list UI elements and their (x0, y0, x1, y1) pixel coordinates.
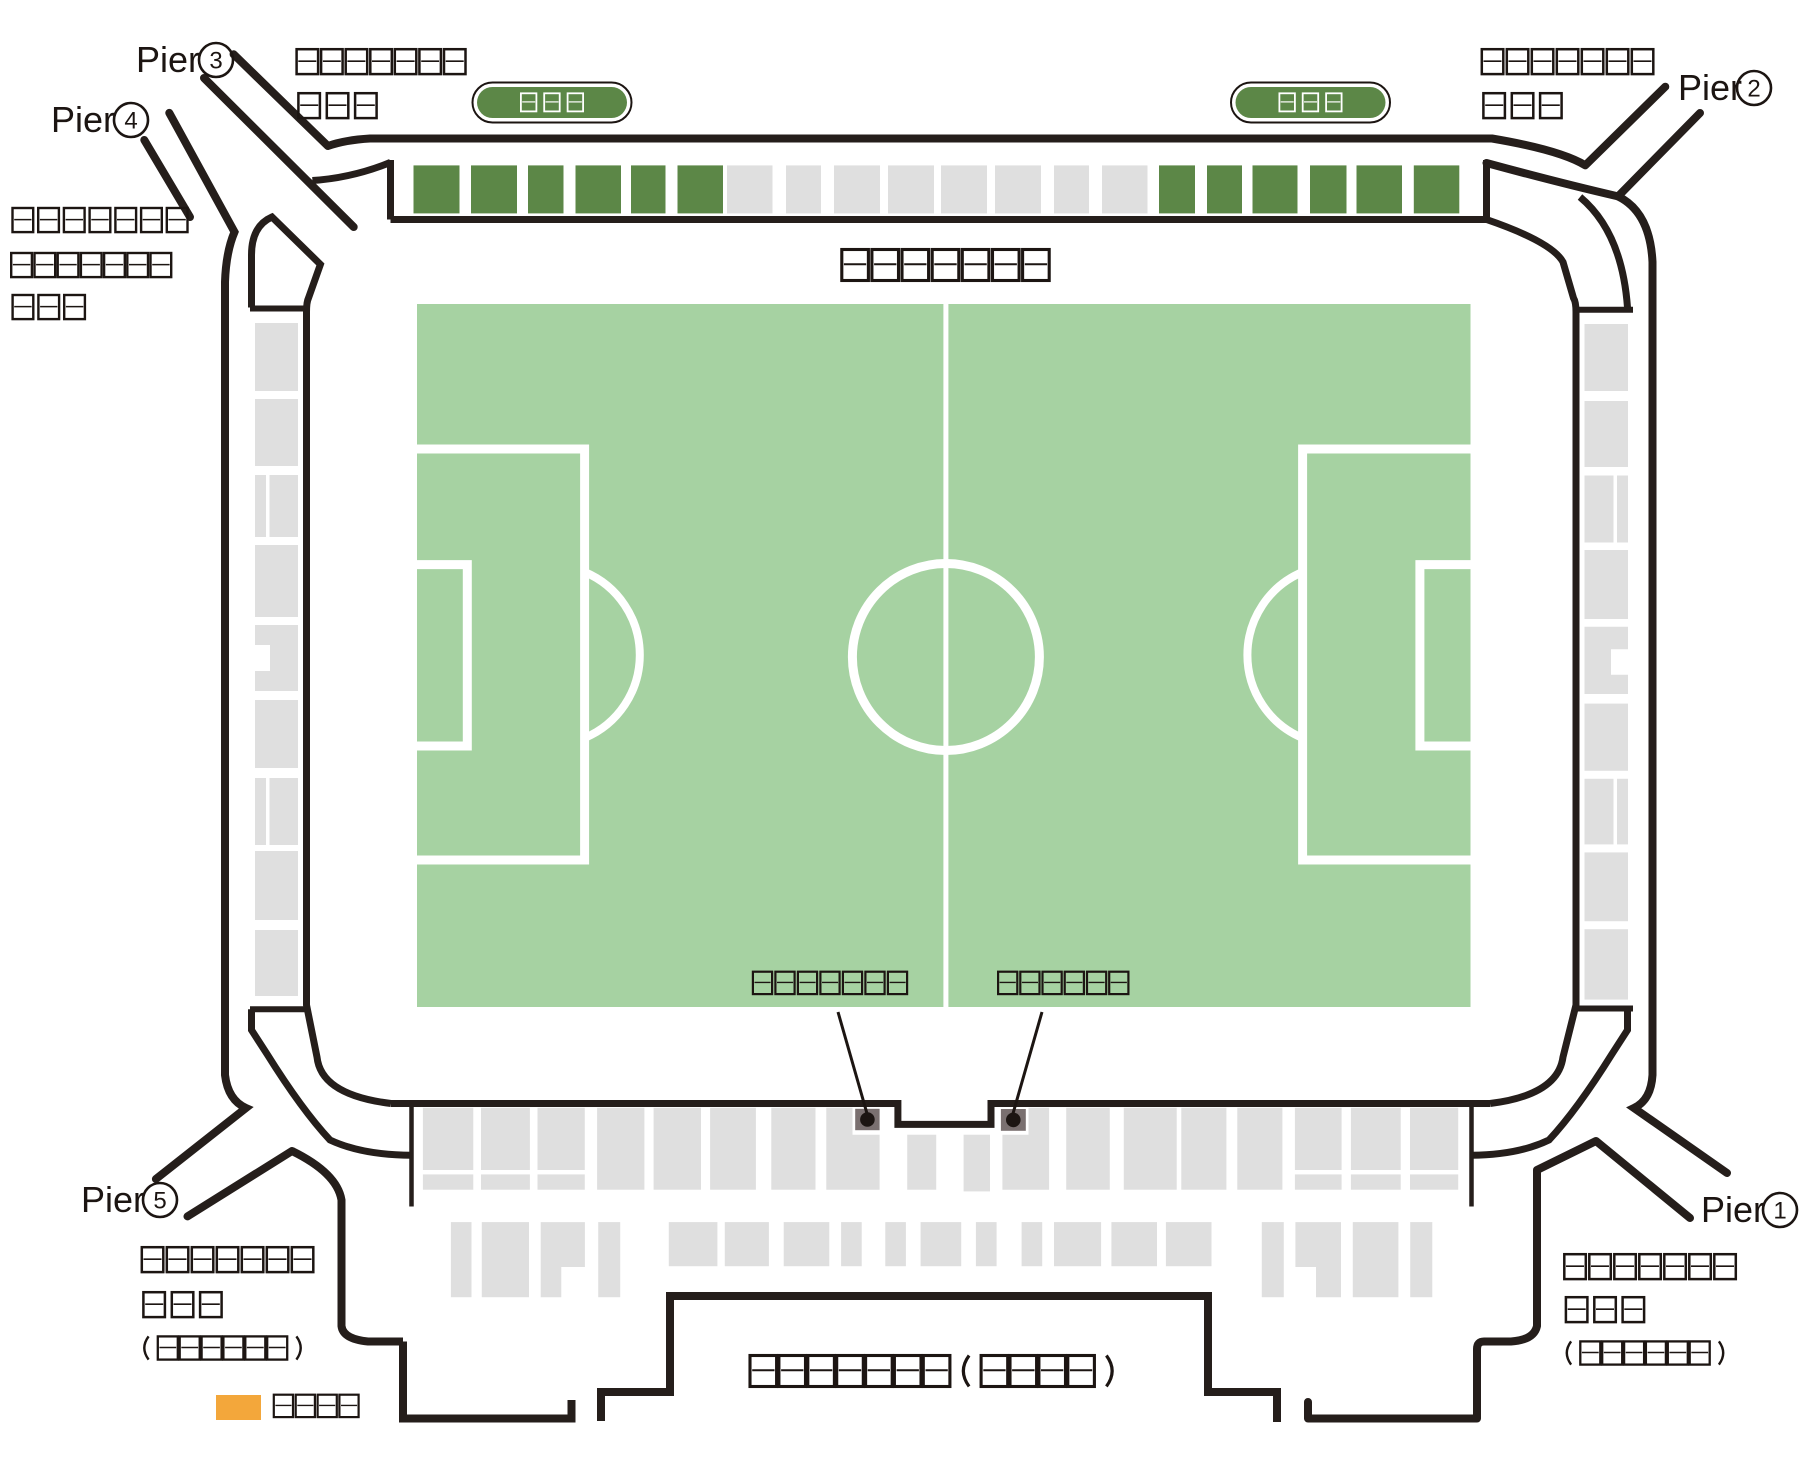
svg-text:4: 4 (124, 108, 137, 135)
svg-text:1: 1 (1773, 1198, 1786, 1225)
svg-text:5: 5 (153, 1188, 166, 1215)
svg-text:Pier: Pier (1701, 1189, 1765, 1230)
svg-text:2: 2 (1747, 76, 1760, 103)
svg-text:Pier: Pier (81, 1179, 145, 1220)
svg-text:Pier: Pier (51, 99, 115, 140)
svg-text:Pier: Pier (136, 39, 200, 80)
svg-text:Pier: Pier (1678, 67, 1742, 108)
svg-text:3: 3 (209, 48, 222, 75)
